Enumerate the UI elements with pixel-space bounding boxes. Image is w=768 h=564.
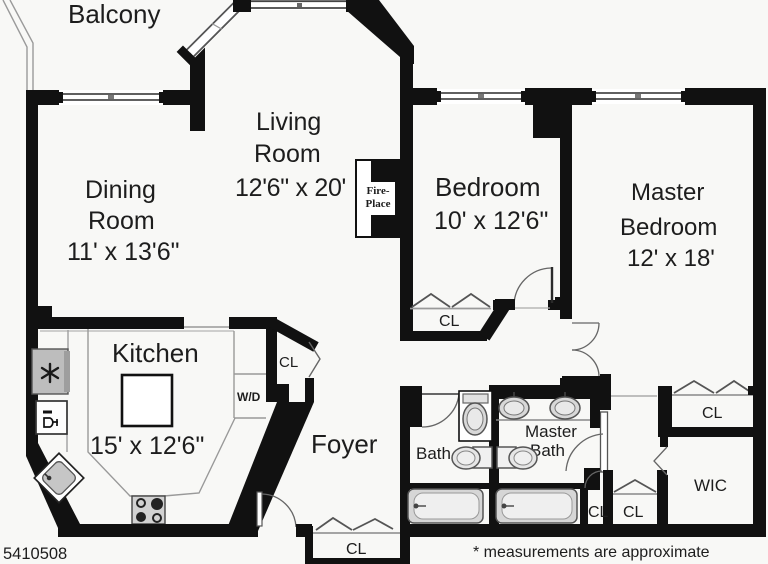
svg-text:WIC: WIC	[694, 476, 727, 495]
svg-text:* measurements are approximate: * measurements are approximate	[473, 544, 710, 561]
svg-text:5410508: 5410508	[3, 545, 67, 563]
svg-text:12'6" x 20': 12'6" x 20'	[235, 174, 346, 202]
svg-text:11' x 13'6": 11' x 13'6"	[67, 238, 179, 266]
svg-text:Living: Living	[256, 108, 321, 136]
svg-text:CL: CL	[702, 405, 723, 422]
svg-text:12' x 18': 12' x 18'	[627, 245, 715, 272]
svg-text:W/D: W/D	[237, 390, 261, 404]
svg-text:Bath: Bath	[416, 444, 451, 463]
svg-text:Room: Room	[88, 207, 155, 235]
svg-text:CL: CL	[439, 313, 460, 330]
svg-text:CL: CL	[346, 541, 367, 558]
svg-text:Bedroom: Bedroom	[435, 172, 541, 202]
svg-text:Place: Place	[365, 198, 390, 210]
svg-text:Dining: Dining	[85, 176, 156, 204]
svg-text:Balcony: Balcony	[68, 0, 161, 29]
svg-text:Bedroom: Bedroom	[620, 214, 717, 241]
svg-text:Fire-: Fire-	[366, 185, 389, 197]
svg-text:Master: Master	[631, 179, 704, 206]
svg-text:CL: CL	[279, 354, 298, 371]
svg-text:CL: CL	[623, 504, 644, 521]
svg-text:15' x 12'6": 15' x 12'6"	[90, 432, 204, 460]
svg-text:Room: Room	[254, 140, 321, 168]
svg-text:Kitchen: Kitchen	[112, 338, 199, 368]
svg-text:10' x 12'6": 10' x 12'6"	[434, 207, 548, 235]
svg-text:Foyer: Foyer	[311, 429, 378, 459]
svg-text:Master: Master	[525, 422, 577, 441]
svg-text:CL: CL	[588, 504, 609, 521]
